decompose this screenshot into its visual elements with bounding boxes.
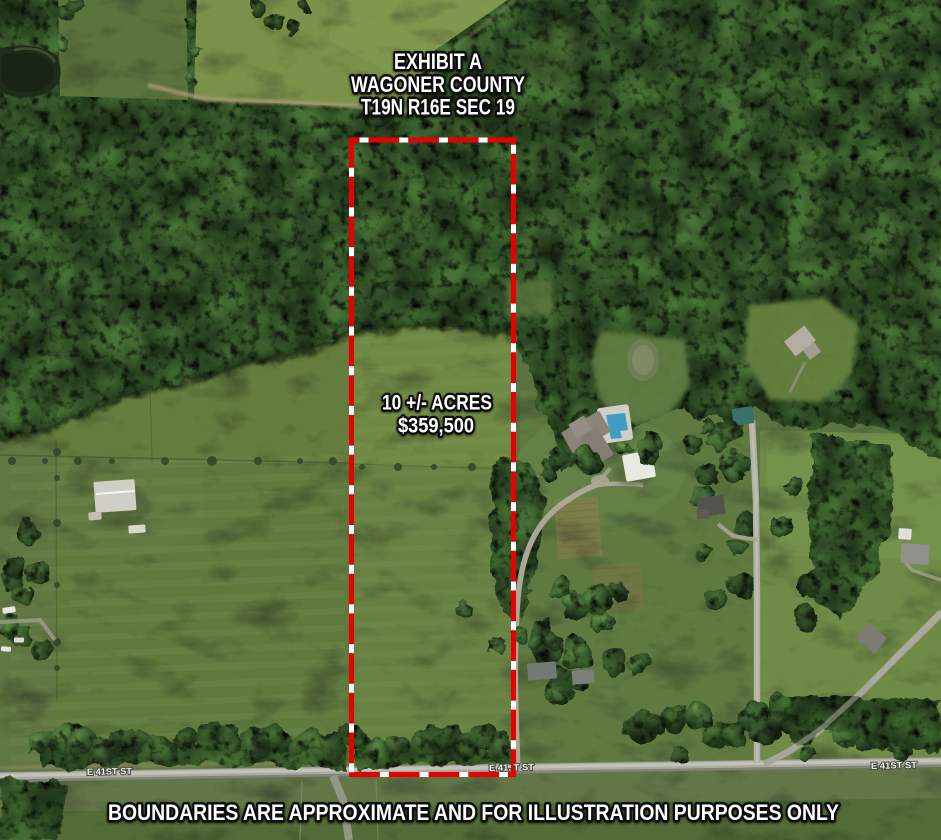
svg-text:$359,500: $359,500 [398,415,474,438]
svg-text:E 41. T ST: E 41. T ST [489,762,535,773]
svg-text:WAGONER COUNTY: WAGONER COUNTY [351,72,525,97]
svg-text:E 41ST ST: E 41ST ST [87,766,133,777]
svg-text:BOUNDARIES ARE APPROXIMATE AND: BOUNDARIES ARE APPROXIMATE AND FOR ILLUS… [108,800,839,825]
svg-text:EXHIBIT A: EXHIBIT A [394,49,482,74]
svg-text:10 +/- ACRES: 10 +/- ACRES [382,392,492,415]
svg-text:T19N R16E SEC 19: T19N R16E SEC 19 [361,95,515,120]
svg-text:E 41ST ST: E 41ST ST [871,760,918,771]
